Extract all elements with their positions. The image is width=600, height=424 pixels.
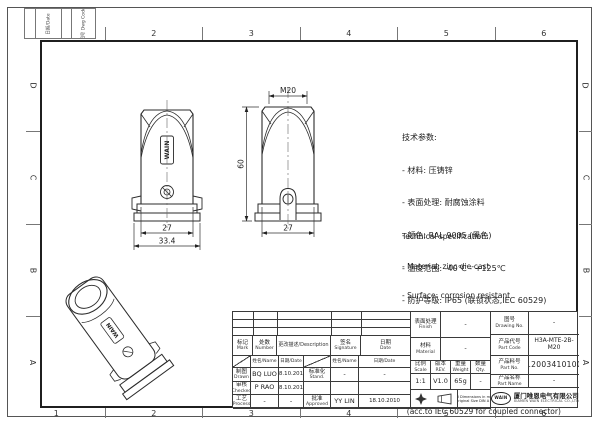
corner-reference-block: 日期/Date 图号 Dwg Code xyxy=(24,8,96,39)
row-label: B xyxy=(26,224,40,316)
corner-cell-empty xyxy=(61,9,71,38)
drawn-name: BQ LUO xyxy=(251,368,279,382)
stand-name: - xyxy=(331,368,359,382)
sign-name-header: 姓名/Name xyxy=(251,356,279,368)
dim-front-flange-width: 33.4 xyxy=(159,237,176,246)
column-label: 4 xyxy=(300,27,398,40)
drawing-sheet: 1 2 3 4 5 6 1 2 3 4 5 6 D C B A D C B A … xyxy=(0,0,600,424)
row-ruler-right: D C B A xyxy=(579,40,592,408)
empty-cell xyxy=(359,382,411,395)
stand-role: 标准化Stand. xyxy=(304,368,331,382)
company-name-en: XIAMEN WAIN ELECTRICAL CO.,LTD xyxy=(514,400,579,404)
weight-label: 重量Weight xyxy=(451,361,471,374)
empty-cell xyxy=(304,382,331,395)
rev-signature-header: 签名Signature xyxy=(331,336,361,356)
drawing-no-label: 图号Drawing No. xyxy=(491,312,529,335)
scale-value: 1:1 xyxy=(411,374,431,390)
corner-cell-date: 日期/Date xyxy=(35,9,61,38)
dim-front-width: 27 xyxy=(162,224,172,233)
material-label: 材料Material xyxy=(411,338,441,361)
iso-logo-text: WAIN xyxy=(106,321,121,339)
part-no-value: 1120034101002 xyxy=(529,356,579,375)
finish-label: 表面处理Finish xyxy=(411,312,441,338)
part-name-value: - xyxy=(529,375,579,388)
dimension-note: All Dimensions in mmOriginal Size DIN A … xyxy=(458,390,491,409)
column-label: 1 xyxy=(8,408,105,418)
column-label: 2 xyxy=(105,408,203,418)
row-label: D xyxy=(26,40,40,131)
column-label: 6 xyxy=(495,27,593,40)
corner-cell-dwg-code: 图号 Dwg Code xyxy=(71,9,95,38)
scale-label: 比例Scale xyxy=(411,361,431,374)
process-role: 工艺Process xyxy=(233,395,251,409)
front-logo-text: WAIN xyxy=(164,141,171,160)
finish-value: - xyxy=(441,312,491,338)
approved-role: 批准Approved xyxy=(304,395,331,409)
row-ruler-left: D C B A xyxy=(26,40,40,408)
row-label: B xyxy=(579,224,592,316)
column-label: 4 xyxy=(300,408,398,418)
approved-name: YY LIN xyxy=(331,395,359,409)
part-code-value: H3A-MTE-2B-M20 xyxy=(529,335,579,356)
rev-mark-header: 标记Mark xyxy=(233,336,253,356)
corner-cell-empty xyxy=(25,9,35,38)
dim-side-width: 27 xyxy=(283,224,293,233)
revision-history-rows xyxy=(233,312,411,336)
part-no-label: 产品料号Part No. xyxy=(491,356,529,375)
spec-cn-item: - 表面处理: 耐腐蚀涂料 xyxy=(402,198,546,209)
rev-description-header: 更改描述/Description xyxy=(277,336,331,356)
front-view: WAIN xyxy=(132,100,202,228)
column-label: 3 xyxy=(202,27,300,40)
drawn-date: 18.10.2010 xyxy=(279,368,304,382)
drawn-role: 制图Drawn xyxy=(233,368,251,382)
row-label: D xyxy=(579,40,592,131)
checked-name: P RAO xyxy=(251,382,279,395)
dim-thread: M20 xyxy=(280,86,296,95)
qty-value: - xyxy=(471,374,491,390)
company-cell: WAIN 厦门唯恩电气有限公司 XIAMEN WAIN ELECTRICAL C… xyxy=(491,388,579,409)
row-label: A xyxy=(579,316,592,408)
checked-date: 18.10.2010 xyxy=(279,382,304,395)
spec-en-title: Technical specification: xyxy=(402,232,561,242)
rev-label: 版本REV. xyxy=(431,361,451,374)
empty-cell xyxy=(331,382,359,395)
stand-date: - xyxy=(359,368,411,382)
sign-name-header: 姓名/Name xyxy=(331,356,359,368)
column-label: 2 xyxy=(105,27,203,40)
spec-cn-title: 技术参数: xyxy=(402,133,546,144)
column-label: 5 xyxy=(397,27,495,40)
weight-value: 65g xyxy=(451,374,471,390)
part-code-label: 产品代号Part Code xyxy=(491,335,529,356)
spec-en-item: - Surface: corrosion resistant xyxy=(402,291,561,301)
row-label: C xyxy=(26,131,40,223)
side-view-dimensions: M20 60 27 xyxy=(237,86,315,237)
dim-height: 60 xyxy=(237,159,246,169)
process-date: - xyxy=(279,395,304,409)
projection-symbols-cell xyxy=(411,390,458,409)
sign-diagonal-cell xyxy=(233,356,251,368)
process-name: - xyxy=(251,395,279,409)
row-label: A xyxy=(26,316,40,408)
isometric-view: WAIN xyxy=(56,268,174,400)
projection-method-icon xyxy=(414,392,454,406)
part-name-label: 产品名称Part Name xyxy=(491,375,529,388)
spec-cn-item: - 材料: 压铸锌 xyxy=(402,166,546,177)
sign-date-header: 日期/Date xyxy=(359,356,411,368)
drawing-no-value: - xyxy=(529,312,579,335)
material-value: - xyxy=(441,338,491,361)
rev-number-header: 处数Number xyxy=(253,336,277,356)
checked-role: 审核Checked xyxy=(233,382,251,395)
rev-value: V1.0 xyxy=(431,374,451,390)
spec-en-item: - Material: zinc die-cast xyxy=(402,262,561,272)
qty-label: 数量Qty. xyxy=(471,361,491,374)
company-logo: WAIN xyxy=(491,392,511,405)
approved-date: 18.10.2010 xyxy=(359,395,411,409)
row-label: C xyxy=(579,131,592,223)
rev-date-header: 日期Date xyxy=(361,336,411,356)
side-view xyxy=(255,88,321,230)
sign-date-header: 日期/Date xyxy=(279,356,304,368)
column-label: 3 xyxy=(202,408,300,418)
sign-diagonal-cell xyxy=(304,356,331,368)
title-block: 标记Mark 处数Number 更改描述/Description 签名Signa… xyxy=(232,311,578,408)
